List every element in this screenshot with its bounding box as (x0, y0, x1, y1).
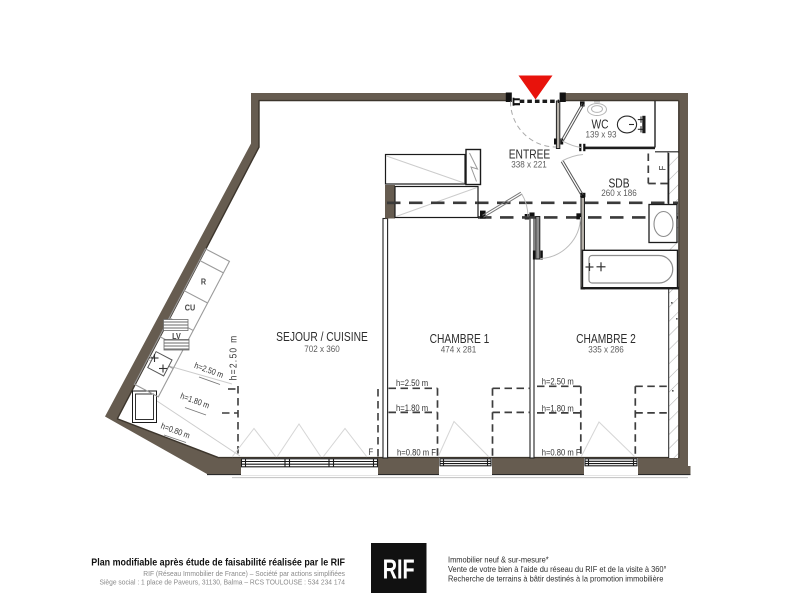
svg-text:702 x 360: 702 x 360 (304, 344, 340, 355)
svg-text:h=0.80 m F: h=0.80 m F (397, 447, 436, 458)
svg-text:474 x 281: 474 x 281 (441, 344, 477, 355)
svg-text:SEJOUR / CUISINE: SEJOUR / CUISINE (276, 331, 368, 344)
svg-text:Siège social : 1 place de Pave: Siège social : 1 place de Paveurs, 31130… (99, 578, 345, 586)
svg-text:h=2.50 m: h=2.50 m (542, 376, 574, 387)
svg-text:h=2.50 m: h=2.50 m (228, 335, 239, 381)
svg-text:F: F (657, 166, 668, 171)
svg-text:338 x 221: 338 x 221 (511, 159, 547, 170)
svg-text:h=2.50 m: h=2.50 m (396, 377, 428, 388)
svg-text:Plan modifiable après étude de: Plan modifiable après étude de faisabili… (91, 557, 345, 569)
svg-text:RIF (Réseau Immobilier de Fran: RIF (Réseau Immobilier de France) – Soci… (143, 570, 345, 578)
svg-text:Recherche de terrains à bâtir: Recherche de terrains à bâtir destinés à… (448, 574, 664, 583)
svg-text:260 x 186: 260 x 186 (601, 188, 637, 199)
svg-text:Immobilier neuf & sur-mesure*: Immobilier neuf & sur-mesure* (448, 555, 549, 564)
svg-text:h=1.80 m: h=1.80 m (396, 402, 428, 413)
svg-text:Vente de votre bien à l'aide d: Vente de votre bien à l'aide du réseau d… (448, 565, 667, 574)
svg-text:LV: LV (172, 332, 182, 341)
svg-text:139 x 93: 139 x 93 (585, 129, 616, 140)
svg-text:RIF: RIF (383, 554, 415, 585)
svg-text:R: R (201, 277, 207, 286)
svg-text:h=0.80 m F: h=0.80 m F (542, 447, 581, 458)
svg-text:CU: CU (185, 303, 196, 312)
svg-text:335 x 286: 335 x 286 (588, 344, 624, 355)
svg-text:h=1.80 m: h=1.80 m (542, 403, 574, 414)
svg-text:F: F (369, 446, 374, 457)
